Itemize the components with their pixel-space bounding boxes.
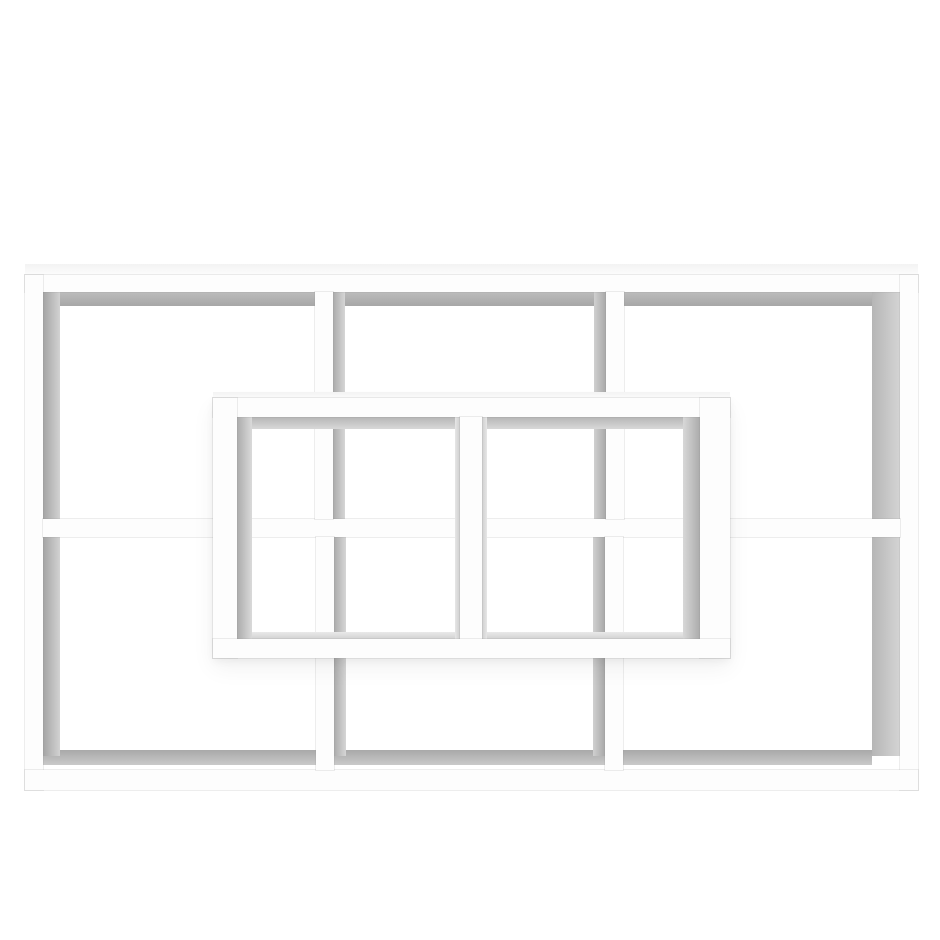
front-box-bottom-board (213, 639, 730, 658)
above-bottom-shade-right (623, 750, 872, 765)
front-box-cell1-left-flank (237, 417, 252, 639)
under-top-shade-right (624, 292, 872, 306)
front-box-right-board (700, 398, 730, 658)
under-top-shade-left (43, 292, 315, 306)
outer-right-board (900, 275, 918, 790)
outer-top-board (25, 275, 918, 292)
above-bottom-shade-left (43, 750, 316, 765)
outer-left-board (25, 275, 43, 790)
under-top-shade-middle (333, 292, 606, 306)
right-wall-inner-flank-top (872, 292, 900, 519)
front-box-cell2-right-flank (683, 417, 700, 639)
outer-bottom-board (25, 770, 918, 790)
product-photo-shelf (0, 0, 940, 940)
right-wall-inner-flank-bottom (872, 537, 900, 756)
front-box-under-top-shade-left (237, 417, 460, 429)
front-box-under-top-shade-right (482, 417, 700, 429)
front-box-above-bottom-shade-left (252, 632, 455, 639)
front-box-left-board (213, 398, 237, 658)
left-wall-inner-flank-top (43, 292, 60, 519)
above-bottom-shade-middle (334, 750, 605, 765)
shelf-top-surface-sheen (25, 264, 918, 275)
front-box-top-board (213, 398, 730, 417)
left-wall-inner-flank-bottom (43, 537, 60, 756)
front-box-center-divider-board (460, 417, 482, 639)
front-box-above-bottom-shade-right (487, 632, 683, 639)
front-box-divider-right-seam (482, 417, 487, 639)
